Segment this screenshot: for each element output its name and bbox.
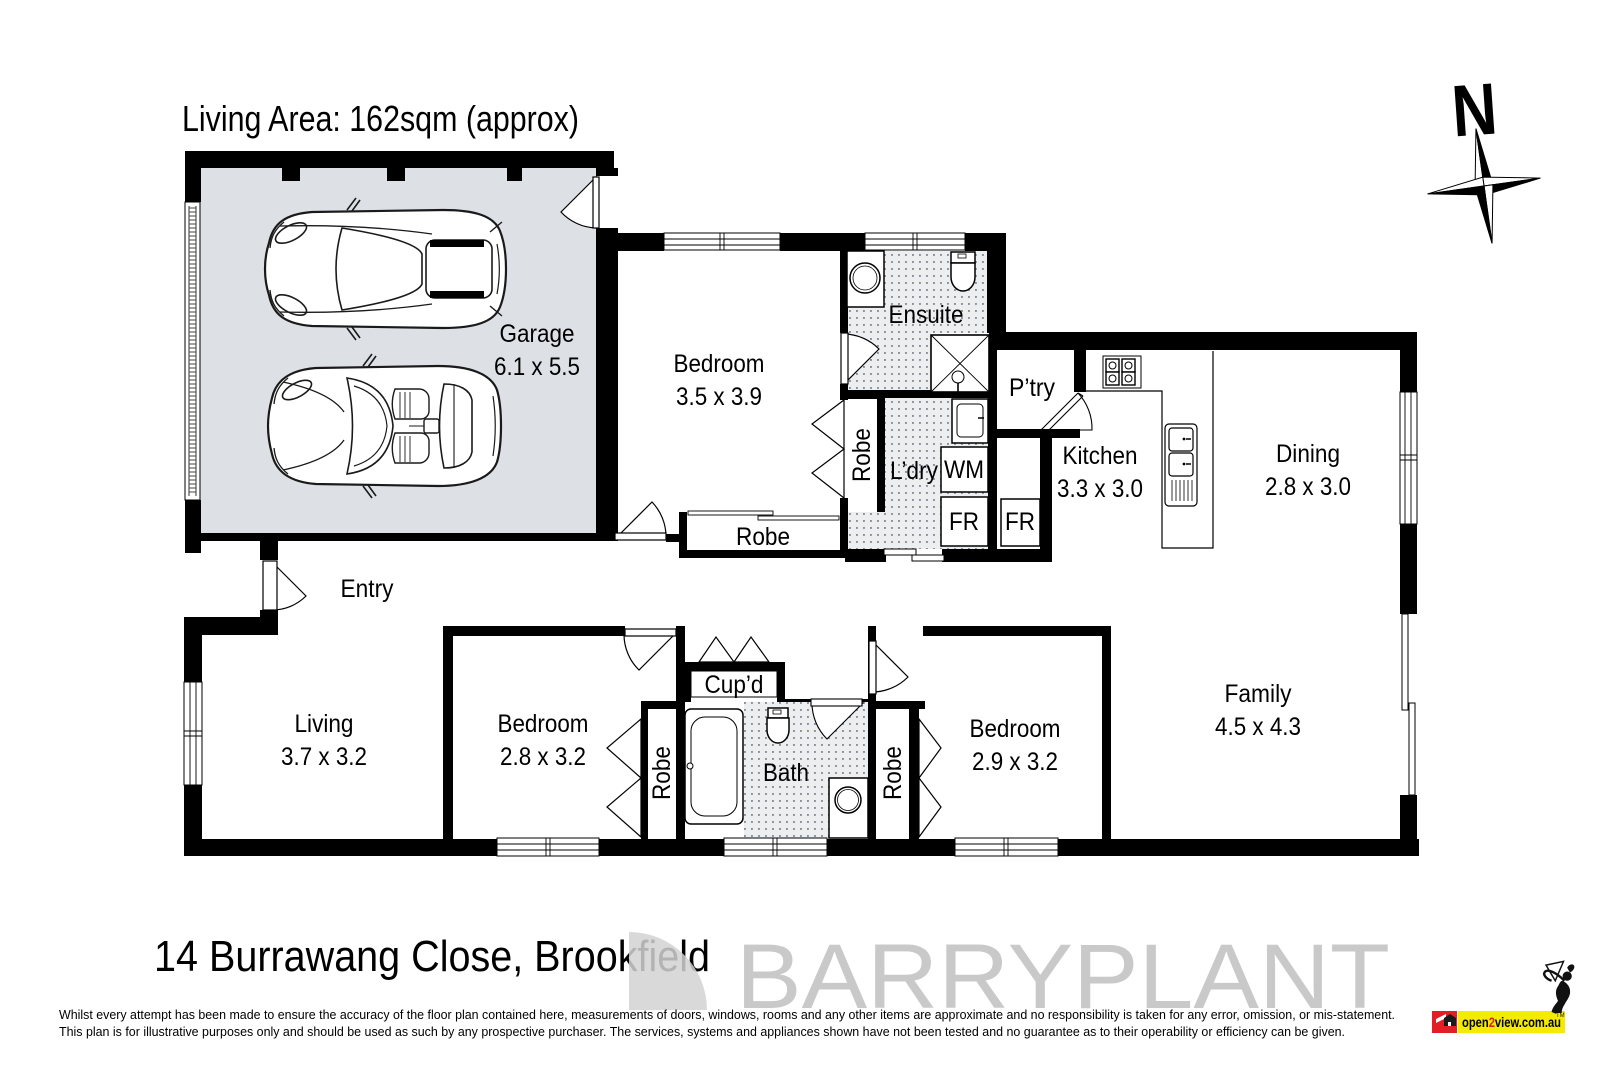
svg-text:Bath: Bath — [763, 759, 809, 787]
svg-text:L’dry: L’dry — [890, 457, 938, 485]
svg-text:Living Area: 162sqm (approx): Living Area: 162sqm (approx) — [182, 98, 579, 139]
svg-text:6.1 x 5.5: 6.1 x 5.5 — [494, 353, 580, 381]
svg-text:FR: FR — [1005, 508, 1035, 536]
svg-text:14 Burrawang Close, Brookfield: 14 Burrawang Close, Brookfield — [154, 932, 710, 981]
svg-text:Whilst every attempt has been: Whilst every attempt has been made to en… — [59, 1007, 1395, 1022]
svg-text:3.3 x 3.0: 3.3 x 3.0 — [1057, 475, 1143, 503]
svg-text:Bedroom: Bedroom — [674, 350, 765, 378]
svg-text:N: N — [1449, 68, 1500, 152]
svg-text:Entry: Entry — [341, 575, 394, 603]
svg-text:Garage: Garage — [500, 320, 575, 348]
svg-text:WM: WM — [944, 456, 984, 484]
svg-text:open2view.com.au: open2view.com.au — [1462, 1015, 1561, 1030]
svg-text:3.7 x 3.2: 3.7 x 3.2 — [281, 743, 367, 771]
svg-text:Bedroom: Bedroom — [970, 715, 1061, 743]
svg-text:2.8 x 3.0: 2.8 x 3.0 — [1265, 473, 1351, 501]
svg-text:Robe: Robe — [736, 523, 790, 551]
svg-text:2.9 x 3.2: 2.9 x 3.2 — [972, 748, 1058, 776]
svg-text:This plan is for illustrative: This plan is for illustrative purposes o… — [59, 1024, 1345, 1039]
svg-text:Family: Family — [1225, 680, 1292, 708]
svg-text:2.8 x 3.2: 2.8 x 3.2 — [500, 743, 586, 771]
svg-text:Dining: Dining — [1276, 440, 1340, 468]
svg-text:4.5 x 4.3: 4.5 x 4.3 — [1215, 713, 1301, 741]
svg-text:Ensuite: Ensuite — [889, 301, 964, 329]
svg-text:P’try: P’try — [1009, 374, 1055, 402]
svg-text:FR: FR — [949, 508, 979, 536]
svg-text:Robe: Robe — [648, 746, 676, 800]
svg-text:Kitchen: Kitchen — [1063, 442, 1138, 470]
svg-text:Bedroom: Bedroom — [498, 710, 589, 738]
svg-text:Living: Living — [295, 710, 354, 738]
svg-text:Robe: Robe — [879, 746, 907, 800]
svg-text:Robe: Robe — [848, 428, 876, 482]
svg-text:Cup’d: Cup’d — [705, 671, 764, 699]
svg-text:3.5 x 3.9: 3.5 x 3.9 — [676, 383, 762, 411]
svg-text:TM: TM — [1556, 1013, 1565, 1019]
